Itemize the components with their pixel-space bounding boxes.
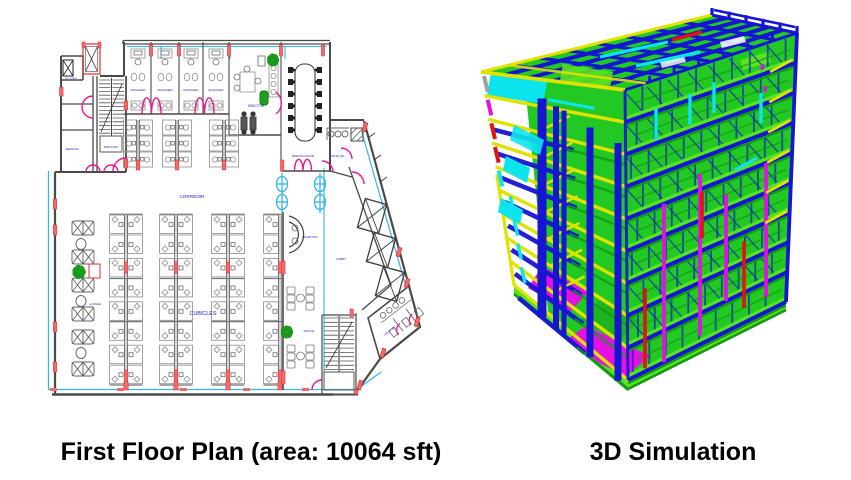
svg-text:MEETING ROOM: MEETING ROOM	[292, 154, 315, 158]
svg-text:First Floor Plan (area: 10064: First Floor Plan (area: 10064 sft)	[61, 438, 442, 466]
svg-text:WAITING: WAITING	[304, 329, 315, 333]
svg-text:LIFT LOBBY: LIFT LOBBY	[65, 78, 78, 80]
svg-text:MANAGER: MANAGER	[130, 88, 146, 92]
svg-text:LOBBY: LOBBY	[336, 257, 346, 261]
svg-text:CUBICLES: CUBICLES	[190, 311, 217, 317]
svg-text:MANAGER: MANAGER	[157, 88, 173, 92]
svg-text:3D Simulation: 3D Simulation	[590, 438, 757, 466]
svg-text:FIRE STAIR: FIRE STAIR	[104, 145, 118, 149]
svg-text:MANAGER: MANAGER	[208, 88, 224, 92]
svg-text:DIRECTOR: DIRECTOR	[248, 104, 265, 108]
svg-text:TOILET (M): TOILET (M)	[330, 154, 345, 158]
svg-text:SERVICE: SERVICE	[65, 147, 78, 151]
svg-text:MANAGER: MANAGER	[183, 88, 199, 92]
svg-text:RECEPTION: RECEPTION	[302, 235, 317, 239]
svg-text:LOUNGE: LOUNGE	[89, 302, 101, 306]
svg-text:TOILET (F): TOILET (F)	[383, 325, 397, 337]
svg-text:CORRIDOR: CORRIDOR	[179, 194, 205, 199]
